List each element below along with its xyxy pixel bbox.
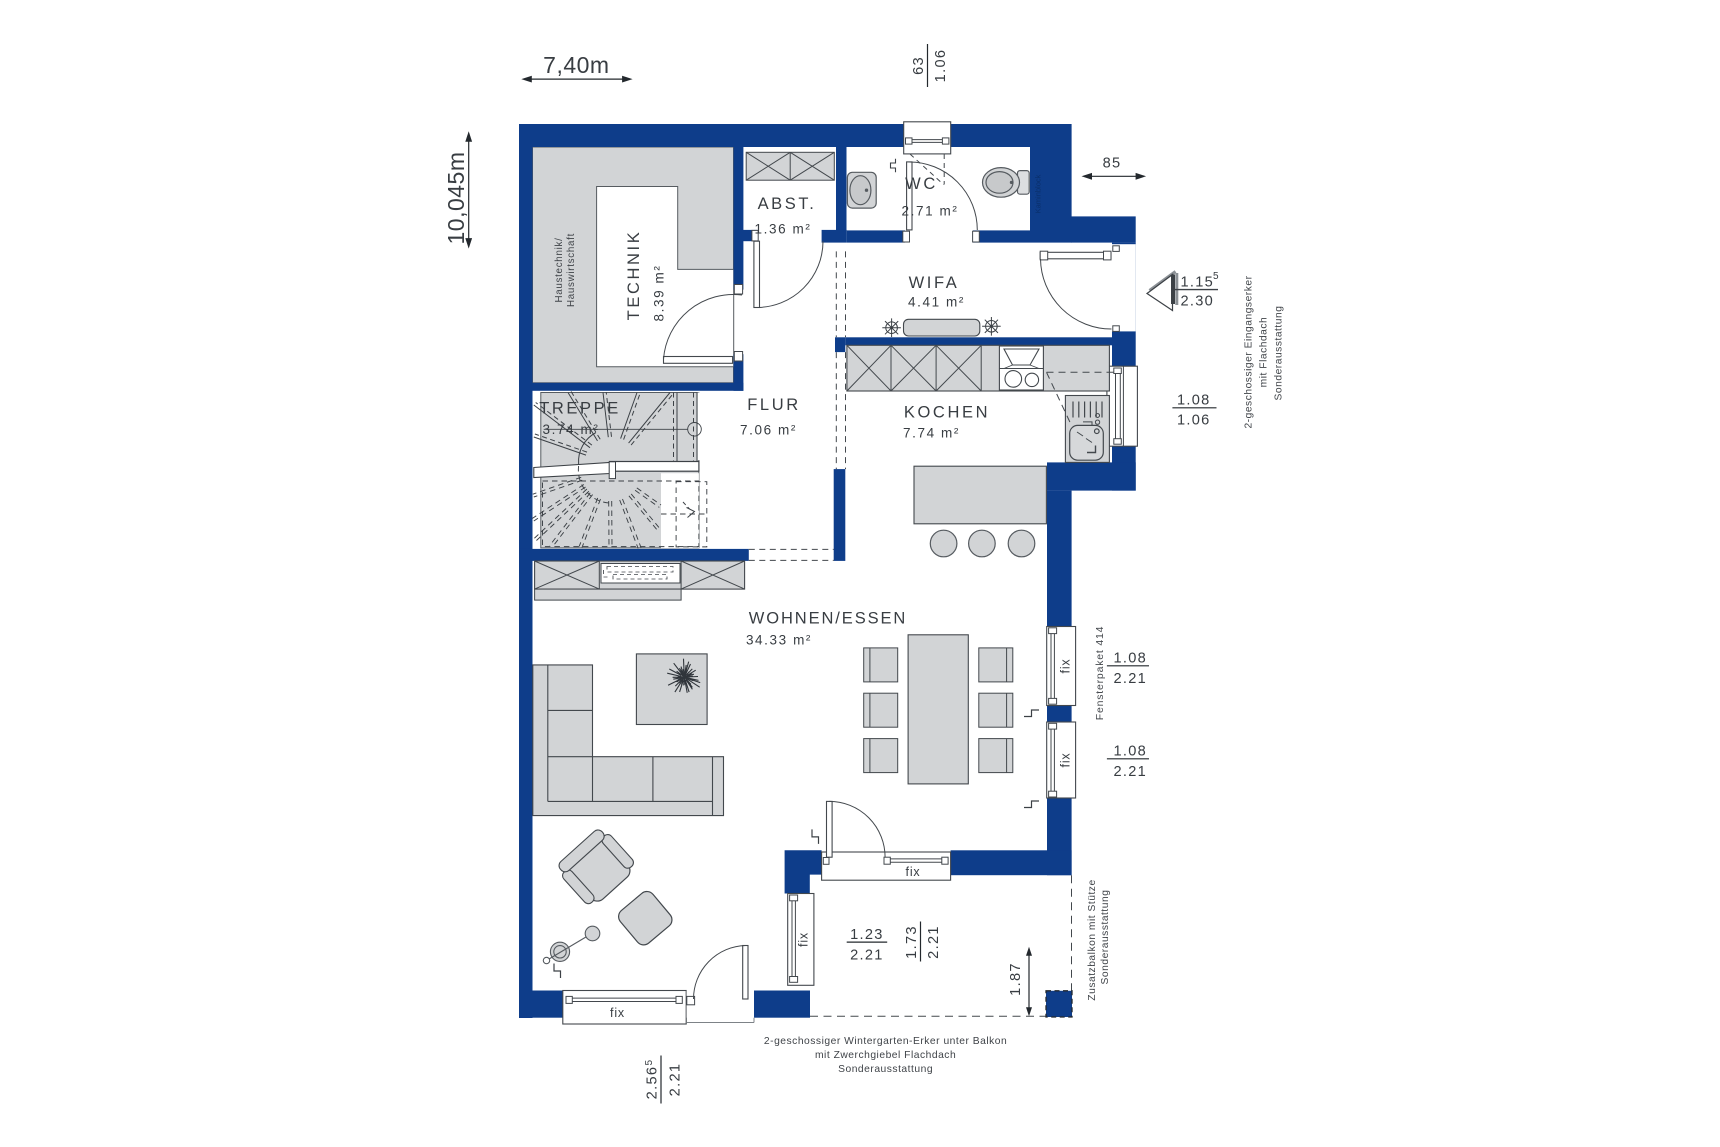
svg-text:2.56: 2.56 bbox=[645, 1066, 661, 1100]
svg-text:KOCHEN: KOCHEN bbox=[904, 404, 990, 422]
svg-text:WIFA: WIFA bbox=[909, 274, 960, 292]
svg-text:ABST.: ABST. bbox=[758, 195, 817, 213]
svg-text:Sonderausstattung: Sonderausstattung bbox=[838, 1064, 933, 1075]
svg-text:7.06 m²: 7.06 m² bbox=[740, 423, 797, 438]
svg-text:1.08: 1.08 bbox=[1177, 393, 1211, 409]
svg-text:Hauswirtschaft: Hauswirtschaft bbox=[566, 233, 577, 307]
svg-text:1.36 m²: 1.36 m² bbox=[755, 222, 812, 237]
svg-text:fix: fix bbox=[1059, 753, 1073, 768]
svg-text:Kaminblock: Kaminblock bbox=[1034, 174, 1043, 213]
svg-text:7.74 m²: 7.74 m² bbox=[903, 426, 960, 441]
svg-text:fix: fix bbox=[906, 865, 921, 879]
svg-text:2-geschossiger Wintergarten-Er: 2-geschossiger Wintergarten-Erker unter … bbox=[764, 1036, 1007, 1047]
svg-text:2.30: 2.30 bbox=[1181, 294, 1215, 310]
svg-text:TECHNIK: TECHNIK bbox=[625, 230, 643, 321]
svg-text:1.08: 1.08 bbox=[1114, 651, 1148, 667]
svg-text:7,40m: 7,40m bbox=[543, 52, 609, 78]
svg-text:Sonderausstattung: Sonderausstattung bbox=[1100, 890, 1111, 985]
svg-text:1.87: 1.87 bbox=[1008, 962, 1024, 996]
svg-text:2.21: 2.21 bbox=[926, 925, 942, 959]
svg-text:Sonderausstattung: Sonderausstattung bbox=[1274, 306, 1285, 401]
svg-text:2.21: 2.21 bbox=[1114, 671, 1148, 687]
svg-text:8.39 m²: 8.39 m² bbox=[652, 265, 667, 322]
svg-text:fix: fix bbox=[797, 932, 811, 947]
svg-text:2.21: 2.21 bbox=[850, 948, 884, 964]
svg-text:FLUR: FLUR bbox=[747, 396, 801, 414]
svg-text:2.21: 2.21 bbox=[1114, 764, 1148, 780]
svg-text:1.15: 1.15 bbox=[1181, 275, 1215, 291]
svg-text:fix: fix bbox=[610, 1006, 625, 1020]
svg-text:mit Flachdach: mit Flachdach bbox=[1259, 317, 1270, 388]
svg-text:5: 5 bbox=[1213, 271, 1219, 282]
svg-text:1.23: 1.23 bbox=[850, 927, 884, 943]
svg-text:2-geschossiger Eingangserker: 2-geschossiger Eingangserker bbox=[1244, 275, 1255, 428]
svg-text:WOHNEN/ESSEN: WOHNEN/ESSEN bbox=[749, 610, 907, 628]
svg-text:1.08: 1.08 bbox=[1114, 744, 1148, 760]
svg-text:3.74 m²: 3.74 m² bbox=[543, 422, 600, 437]
svg-text:Haustechnik/: Haustechnik/ bbox=[554, 237, 565, 302]
svg-text:1.06: 1.06 bbox=[1177, 413, 1211, 429]
svg-text:1.73: 1.73 bbox=[904, 925, 920, 959]
svg-text:85: 85 bbox=[1103, 156, 1122, 172]
svg-text:4.41 m²: 4.41 m² bbox=[908, 295, 965, 310]
svg-text:5: 5 bbox=[644, 1060, 655, 1066]
svg-text:10,045m: 10,045m bbox=[443, 151, 469, 244]
svg-text:1.06: 1.06 bbox=[933, 49, 949, 83]
svg-text:2.21: 2.21 bbox=[668, 1063, 684, 1097]
svg-text:Fensterpaket 414: Fensterpaket 414 bbox=[1094, 626, 1106, 721]
svg-text:Zusatzbalkon mit Stütze: Zusatzbalkon mit Stütze bbox=[1087, 879, 1098, 1000]
svg-text:34.33 m²: 34.33 m² bbox=[746, 633, 812, 648]
svg-text:fix: fix bbox=[1059, 659, 1073, 674]
svg-text:WC: WC bbox=[905, 175, 938, 193]
svg-text:2.71 m²: 2.71 m² bbox=[902, 204, 959, 219]
svg-text:mit Zwerchgiebel Flachdach: mit Zwerchgiebel Flachdach bbox=[815, 1050, 956, 1061]
svg-text:63: 63 bbox=[911, 56, 927, 75]
svg-text:TREPPE: TREPPE bbox=[539, 400, 621, 418]
